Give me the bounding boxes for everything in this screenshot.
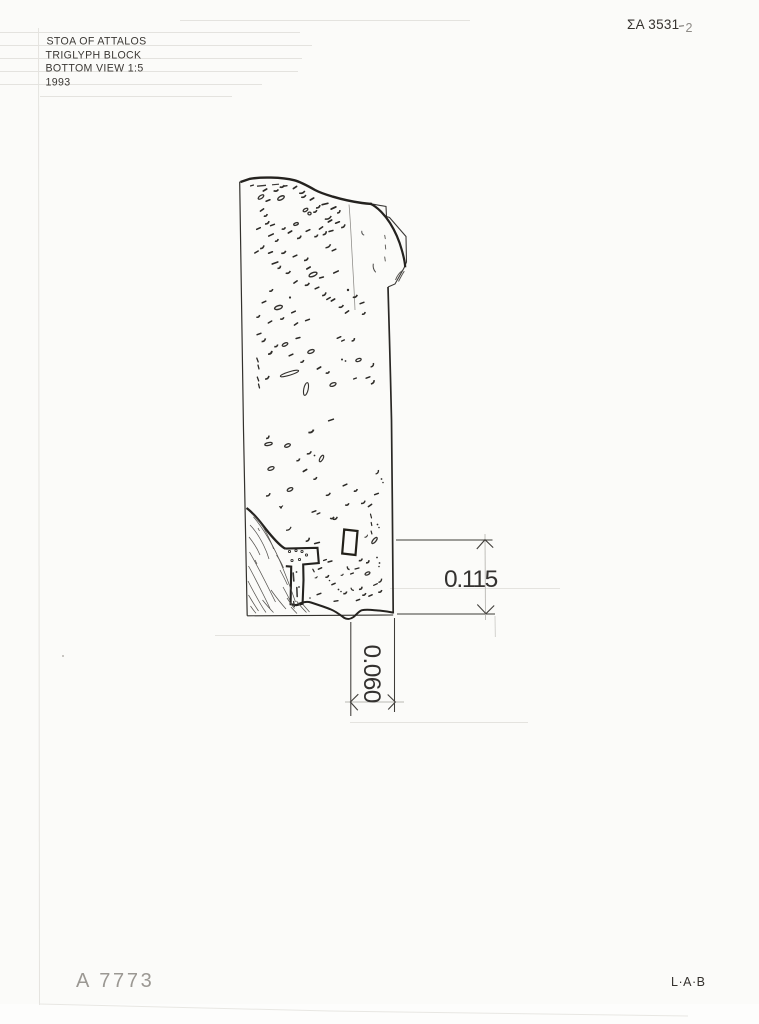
svg-text:TRIGLYPH BLOCK: TRIGLYPH BLOCK	[46, 50, 142, 62]
svg-text:2: 2	[686, 21, 693, 35]
svg-text:0.115: 0.115	[444, 566, 498, 593]
svg-text:BOTTOM VIEW 1:5: BOTTOM VIEW 1:5	[46, 63, 144, 75]
svg-text:STOA OF ATTALOS: STOA OF ATTALOS	[47, 36, 147, 48]
svg-text:1993: 1993	[46, 77, 71, 89]
svg-text:A 7773: A 7773	[76, 970, 155, 992]
svg-text:0.060: 0.060	[358, 645, 385, 703]
svg-text:L·A·B: L·A·B	[671, 975, 705, 989]
svg-text:ΣA 3531: ΣA 3531	[627, 17, 680, 32]
